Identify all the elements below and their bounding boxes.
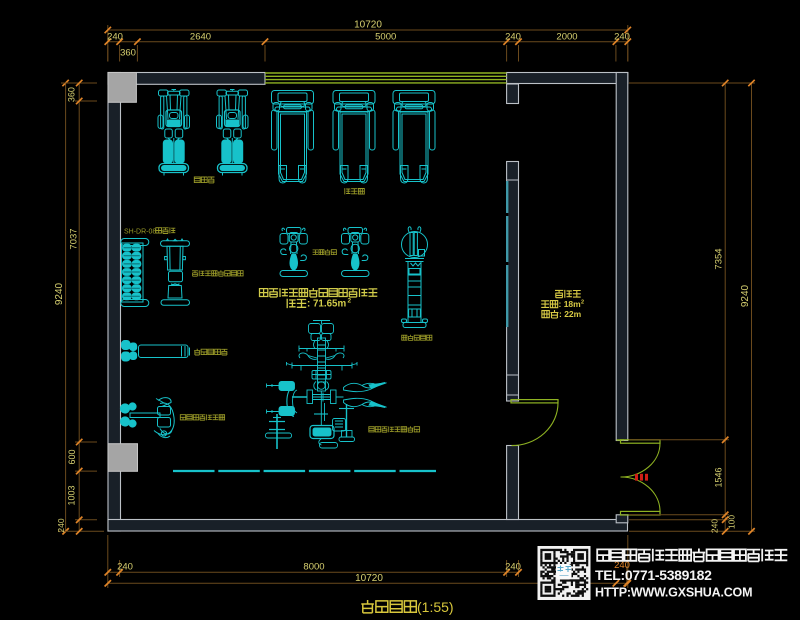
svg-text:10720: 10720 [354, 20, 382, 31]
svg-text:360: 360 [67, 87, 77, 102]
svg-text:1003: 1003 [67, 485, 77, 505]
svg-text:1546: 1546 [714, 467, 724, 487]
svg-text:9240: 9240 [740, 284, 751, 307]
svg-text:360: 360 [120, 48, 136, 59]
svg-text:9240: 9240 [54, 282, 65, 305]
svg-text:2: 2 [581, 300, 584, 306]
svg-text:240: 240 [56, 518, 66, 532]
svg-text:240: 240 [505, 562, 521, 573]
svg-text:7037: 7037 [69, 228, 80, 249]
svg-text:2000: 2000 [556, 31, 577, 42]
svg-text:240: 240 [710, 519, 720, 533]
svg-text:100: 100 [727, 515, 737, 529]
svg-text:5000: 5000 [375, 31, 396, 42]
svg-text:240: 240 [505, 31, 521, 42]
svg-text:10720: 10720 [355, 573, 383, 584]
svg-text:600: 600 [67, 449, 77, 464]
svg-text:: 71.65m: : 71.65m [307, 299, 347, 310]
svg-text:240: 240 [117, 562, 133, 573]
svg-text:: 22m: : 22m [559, 309, 582, 319]
svg-text:8000: 8000 [303, 562, 324, 573]
svg-text:(1:55): (1:55) [417, 599, 454, 615]
svg-text:240: 240 [107, 31, 123, 42]
svg-text:SH-DR-08: SH-DR-08 [124, 229, 156, 236]
svg-text:HTTP:WWW.GXSHUA.COM: HTTP:WWW.GXSHUA.COM [595, 586, 752, 600]
svg-text:2640: 2640 [190, 31, 211, 42]
svg-text:240: 240 [614, 31, 630, 42]
svg-text:2: 2 [348, 298, 352, 305]
svg-text:: 18m: : 18m [559, 299, 582, 309]
svg-text:7354: 7354 [714, 248, 725, 269]
svg-text:TEL:0771-5389182: TEL:0771-5389182 [595, 567, 712, 583]
